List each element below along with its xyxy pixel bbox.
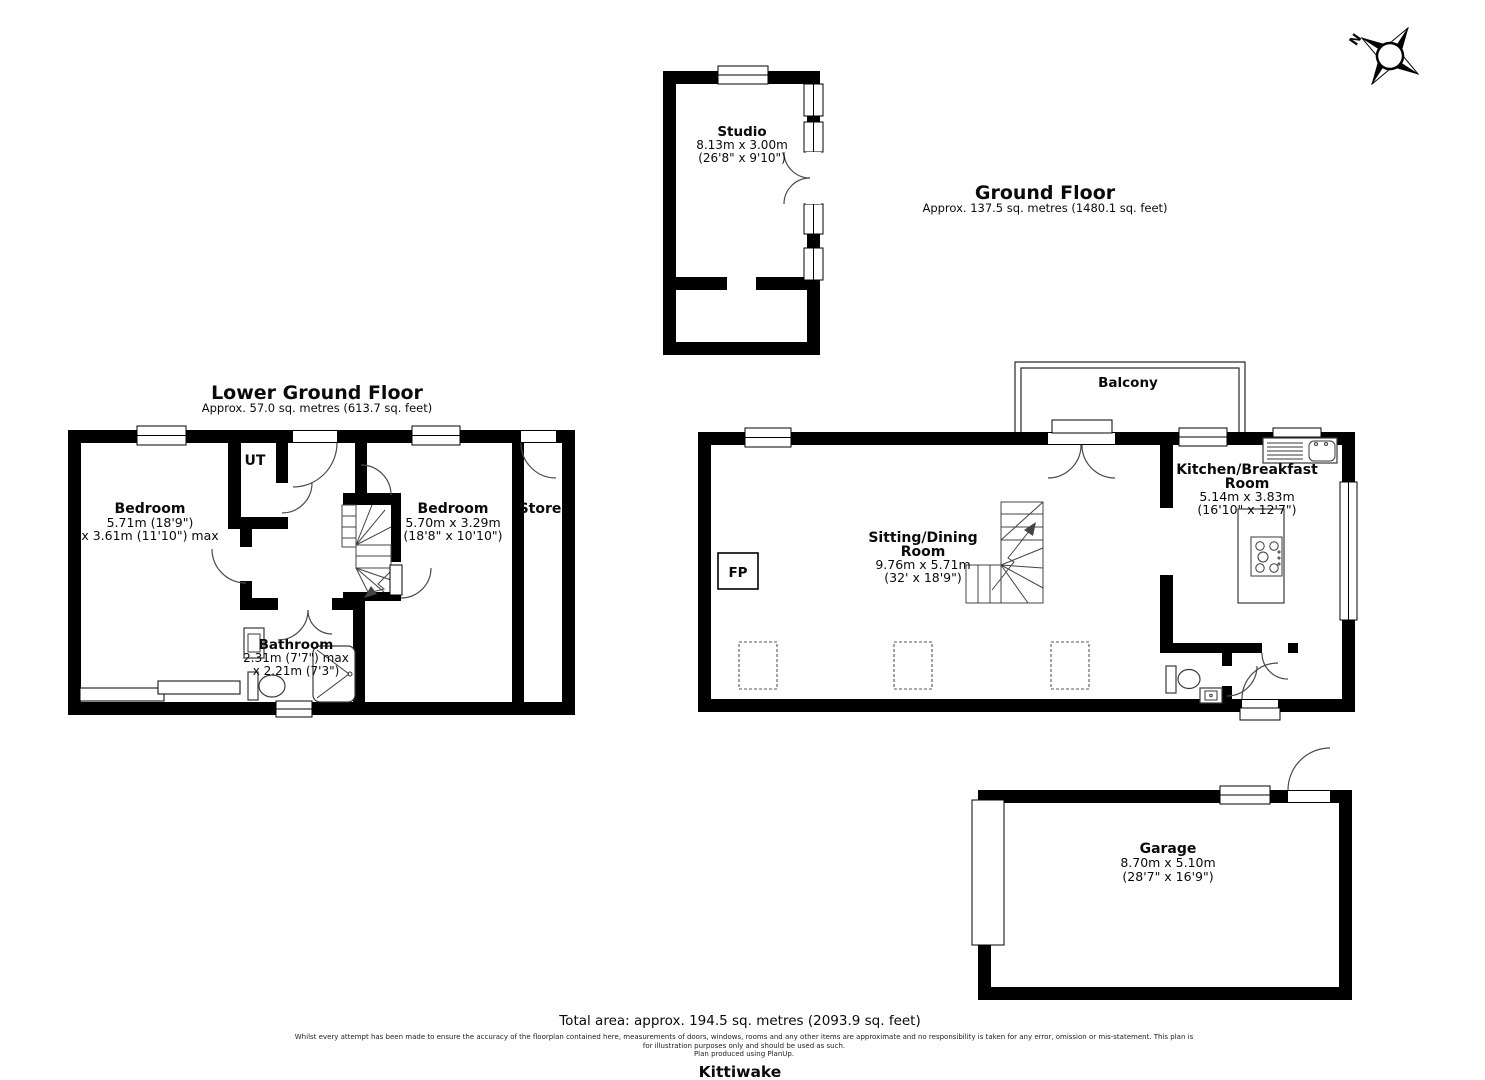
lgf-window-bathroom (276, 701, 312, 717)
garage-dim-1: 8.70m x 5.10m (1120, 855, 1215, 870)
gf-stairs (966, 502, 1043, 603)
bathroom-door-arc (278, 610, 308, 640)
balcony-door-arc-right (1082, 445, 1115, 478)
north-arrow-icon (1343, 9, 1437, 103)
studio-plan: Studio 8.13m x 3.00m (26'8" x 9'10") (663, 66, 823, 355)
studio-dim-2: (26'8" x 9'10") (698, 151, 786, 165)
wc-toilet-icon (1166, 666, 1200, 693)
lobby-door-arc (308, 610, 332, 634)
gf-window-kitchen-1 (1179, 428, 1227, 446)
kitchen-island (1238, 509, 1284, 603)
gf-window-right (1340, 482, 1357, 620)
disclaimer-line-2: for illustration purposes only and shoul… (643, 1042, 845, 1050)
garage-plan: Garage 8.70m x 5.10m (28'7" x 16'9") (972, 748, 1352, 1000)
fireplace-label: FP (728, 565, 747, 581)
studio-dim-1: 8.13m x 3.00m (696, 138, 788, 152)
utility-door-arc (282, 483, 312, 513)
bathroom-dim-2: x 2.21m (7'3") (253, 664, 340, 678)
ground-floor-subtitle: Approx. 137.5 sq. metres (1480.1 sq. fee… (922, 201, 1167, 215)
garage-door (972, 800, 1004, 945)
balcony-door-arc-left (1048, 445, 1081, 478)
balcony-door-frame (1052, 420, 1112, 433)
footer: Total area: approx. 194.5 sq. metres (20… (295, 1013, 1194, 1080)
rooflight-marker-2 (894, 642, 932, 689)
studio-window-top (718, 66, 768, 84)
kitchen-dim-2: (16'10" x 12'7") (1197, 502, 1296, 517)
kitchen-lobby-door-arc (1262, 653, 1288, 679)
garage-window-top (1220, 786, 1270, 804)
north-label: N (1347, 31, 1366, 49)
disclaimer-line-1: Whilst every attempt has been made to en… (295, 1033, 1194, 1041)
sitting-dining-dim-2: (32' x 18'9") (884, 570, 961, 585)
lower-ground-floor-plan: Bedroom 5.71m (18'9") x 3.61m (11'10") m… (68, 426, 575, 717)
lower-ground-floor-heading: Lower Ground Floor Approx. 57.0 sq. metr… (202, 382, 432, 415)
ground-floor-plan: FP (698, 362, 1357, 720)
bedroom2-dim-2: (18'8" x 10'10") (403, 528, 502, 543)
store-label: Store (519, 501, 562, 517)
entrance-door-arc (1242, 663, 1278, 699)
fireplace: FP (718, 553, 758, 589)
lgf-window-top-left (137, 426, 186, 445)
balcony-label: Balcony (1098, 375, 1158, 391)
bedroom1-dim-2: x 3.61m (11'10") max (81, 528, 218, 543)
garage-side-door-arc (1288, 748, 1330, 790)
floorplan-page: N Studio 8.13m x 3.00m (26'8" x 9'10") G (0, 0, 1485, 1080)
lower-ground-floor-subtitle: Approx. 57.0 sq. metres (613.7 sq. feet) (202, 401, 432, 415)
store-door-arc (521, 443, 556, 478)
entrance-door-leaf (1240, 708, 1280, 720)
wc-sink-icon (1200, 688, 1222, 703)
kitchen-sink-icon (1263, 438, 1337, 463)
garage-dim-2: (28'7" x 16'9") (1122, 869, 1213, 884)
total-area-text: Total area: approx. 194.5 sq. metres (20… (558, 1013, 921, 1029)
lgf-hall-door-arc (293, 443, 337, 487)
lgf-window-top-right (412, 426, 460, 445)
utility-label: UT (245, 453, 266, 469)
disclaimer-line-3: Plan produced using PlanUp. (694, 1050, 794, 1058)
property-name: Kittiwake (699, 1063, 782, 1080)
gf-window-sitting (745, 428, 791, 447)
bathroom-dim-1: 2.31m (7'7") max (243, 651, 349, 665)
rooflight-marker-3 (1051, 642, 1089, 689)
balcony-outline (1015, 362, 1245, 432)
floorplan-canvas: N Studio 8.13m x 3.00m (26'8" x 9'10") G (0, 0, 1485, 1080)
ground-floor-heading: Ground Floor Approx. 137.5 sq. metres (1… (922, 182, 1167, 215)
rooflight-marker-1 (739, 642, 777, 689)
lgf-patio-glazing (80, 681, 240, 701)
